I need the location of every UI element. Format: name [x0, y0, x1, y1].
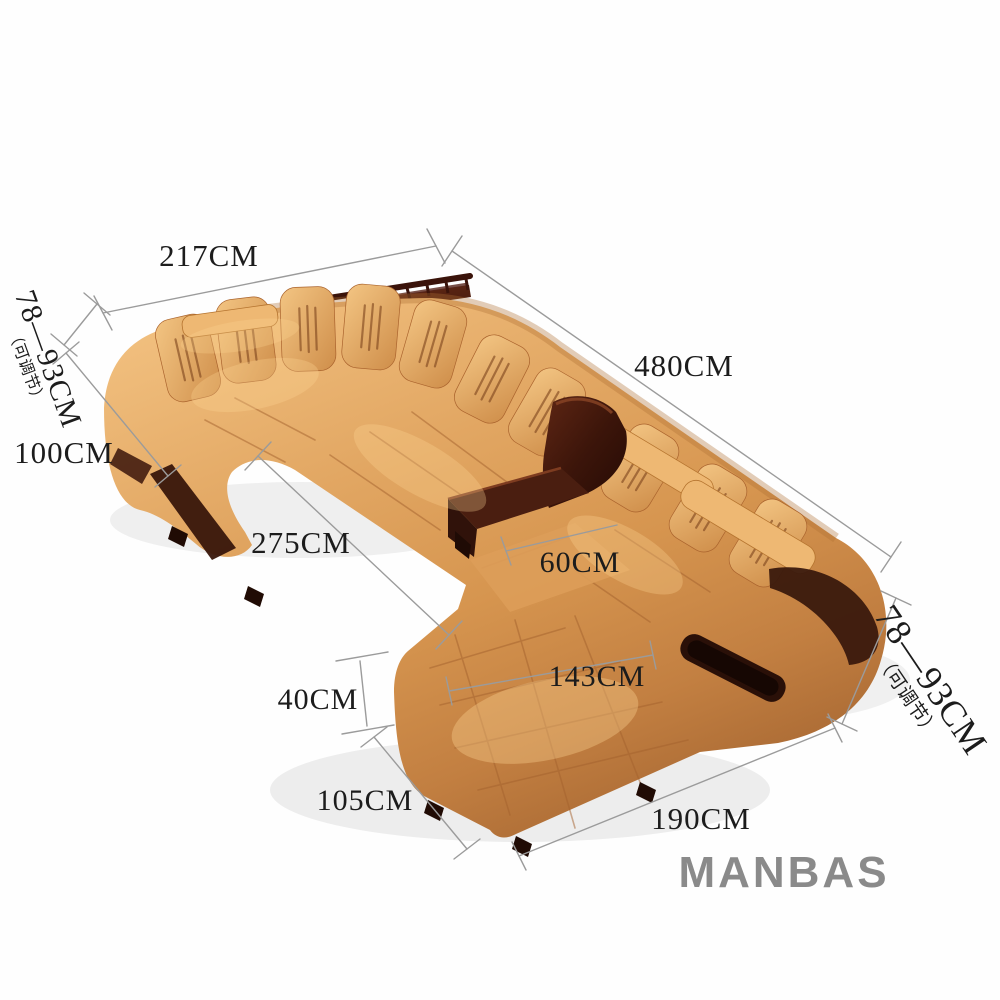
dim-line-right-section-length [512, 714, 842, 870]
dim-label-total-length: 480CM [634, 348, 734, 384]
product-image: 217CM 480CM 100CM 275CM 60CM 143CM 40CM … [0, 0, 1000, 1000]
dim-label-chaise-height: 40CM [278, 683, 359, 717]
dim-line-back-width [94, 229, 445, 330]
dim-label-chaise-length: 143CM [549, 660, 646, 694]
dim-label-right-section-length: 190CM [651, 801, 751, 837]
dim-label-straight-section: 275CM [251, 525, 351, 561]
dim-line-total-length [442, 236, 901, 572]
dim-label-ottoman-depth: 60CM [540, 546, 621, 580]
dim-label-chaise-width: 105CM [317, 784, 414, 818]
dim-label-left-depth: 100CM [14, 435, 114, 471]
dim-label-back-width: 217CM [159, 238, 259, 274]
brand-watermark: MANBAS [678, 848, 889, 898]
